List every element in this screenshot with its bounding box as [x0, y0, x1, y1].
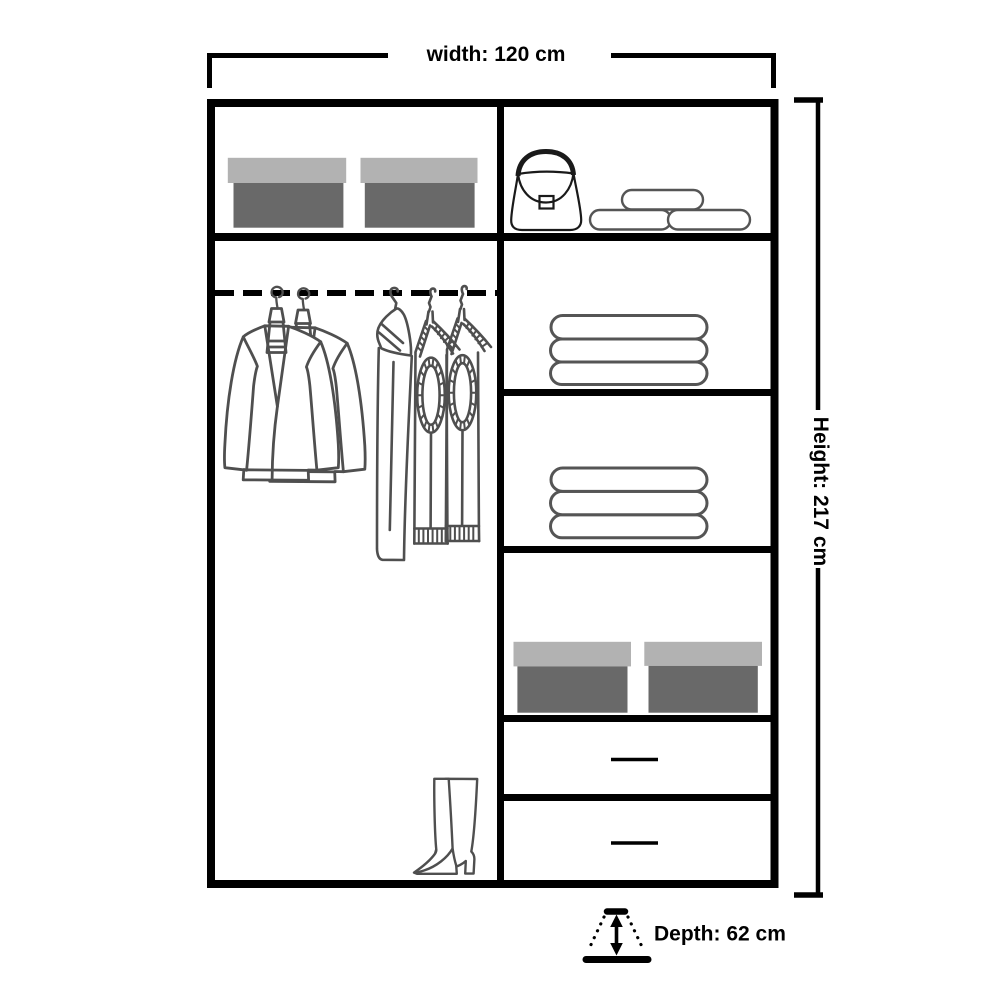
svg-text:width: 120 cm: width: 120 cm — [426, 43, 566, 66]
svg-text:Depth: 62 cm: Depth: 62 cm — [654, 923, 786, 946]
svg-text:Height: 217 cm: Height: 217 cm — [809, 417, 832, 566]
